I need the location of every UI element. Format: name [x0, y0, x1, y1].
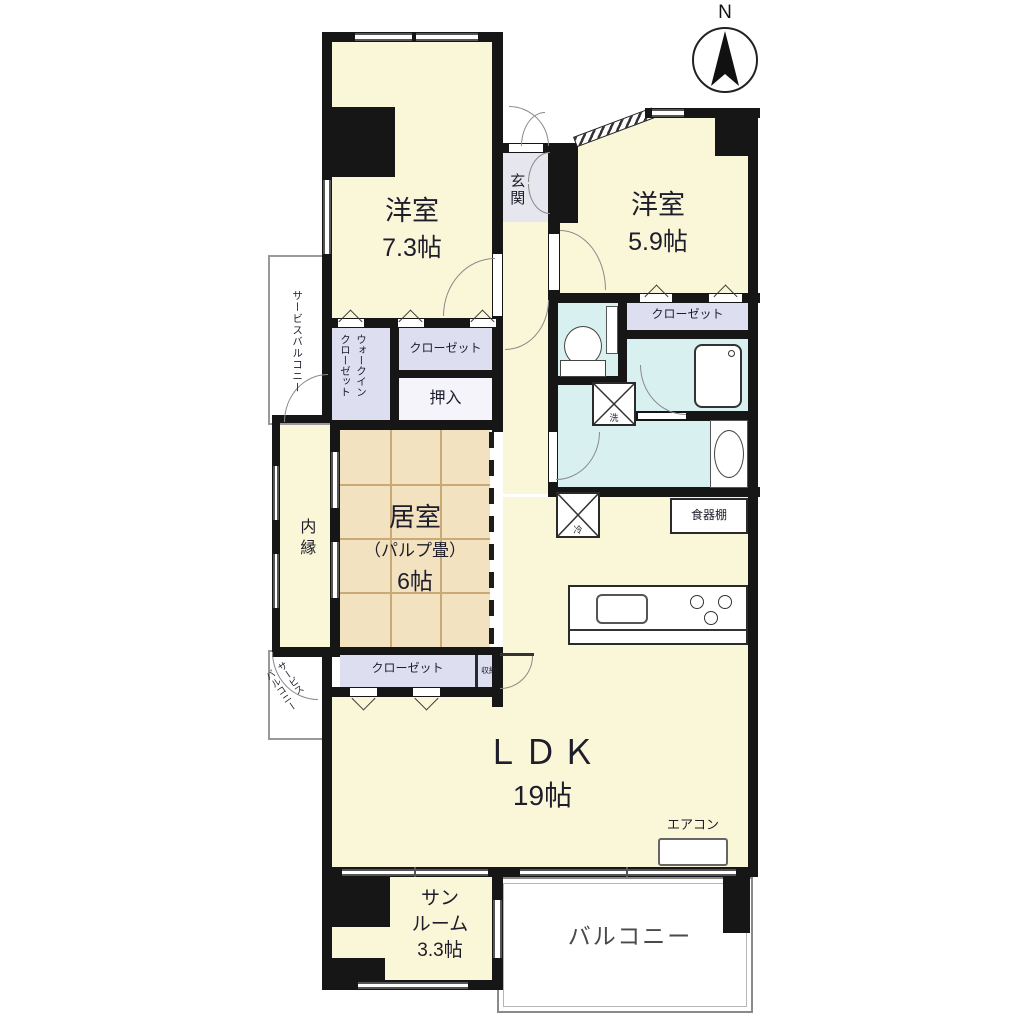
stove-burner-icon: [690, 595, 704, 609]
cupboard-box: 食器棚: [670, 498, 748, 534]
window: [416, 33, 478, 41]
sunroom-line2: ルーム: [385, 914, 495, 936]
wall: [272, 415, 280, 655]
sunroom-line1: サン: [385, 888, 495, 910]
sliding-door-tick: [414, 867, 416, 877]
walk-in-closet-label: ウォークイン クローゼット: [338, 334, 369, 418]
service-balcony-top-label: サービスバルコニー: [291, 272, 303, 412]
wall: [330, 647, 503, 655]
sliding-door-tick: [626, 867, 628, 877]
wall: [330, 420, 503, 430]
wall: [618, 303, 627, 383]
sliding-door-dashes: [489, 432, 494, 647]
compass-icon: [690, 24, 760, 94]
wall: [548, 143, 578, 223]
window: [358, 982, 468, 989]
pillar: [715, 108, 748, 156]
western-room-1-label: 洋室: [352, 196, 472, 227]
toilet-sink: [606, 306, 618, 354]
window: [323, 180, 331, 254]
tatami-room-note: （パルプ畳）: [340, 541, 490, 561]
ldk-size: 19帖: [460, 780, 625, 812]
window: [273, 466, 279, 520]
tatami-room-label: 居室: [355, 503, 475, 533]
kitchen-counter: [568, 585, 748, 645]
refrigerator-space-box: 冷: [556, 492, 600, 538]
wall: [395, 370, 503, 378]
closet-right-label: クローゼット: [627, 308, 748, 322]
window: [355, 33, 412, 41]
aircon-unit: [658, 838, 728, 866]
door-opening: [549, 234, 559, 290]
pillar: [723, 875, 750, 933]
compass-north-label: N: [714, 2, 736, 24]
walk-in-closet-line1: ウォークイン: [354, 334, 369, 418]
stove-burner-icon: [704, 611, 718, 625]
window: [331, 452, 339, 508]
tatami-grid-line: [340, 484, 490, 486]
stove-burner-icon: [718, 595, 732, 609]
oshiire-label: 押入: [399, 390, 492, 408]
western-room-2-size: 5.9帖: [598, 228, 718, 257]
washbasin-icon: [714, 430, 744, 478]
tatami-grid-line: [340, 538, 490, 540]
western-room-1-size: 7.3帖: [352, 234, 472, 263]
pillar: [330, 107, 395, 177]
closet-upper-label: クローゼット: [399, 342, 492, 356]
inner-veranda-label: 内縁: [296, 503, 314, 575]
ldk-label: ＬＤＫ: [460, 734, 625, 773]
window: [652, 109, 684, 117]
bathtub-drain: [728, 350, 735, 357]
tatami-room-floor: [340, 430, 490, 647]
walk-in-closet-line2: クローゼット: [338, 334, 353, 418]
laundry-label: 洗: [594, 413, 634, 423]
hallway-floor: [503, 222, 548, 494]
sunroom-size: 3.3帖: [385, 940, 495, 962]
toilet-tank: [560, 360, 606, 377]
floor-plan: 洗 冷 食器棚 N 洋室 7.3帖 洋室 5.9帖 玄関 クローゼット ウォーク…: [0, 0, 1024, 1024]
refrigerator-label: 冷: [558, 525, 598, 535]
closet-lower-label: クローゼット: [340, 662, 475, 676]
pillar: [322, 867, 390, 927]
bathtub-icon: [694, 344, 742, 408]
wall: [627, 330, 748, 339]
window: [273, 554, 279, 608]
entrance-label: 玄関: [508, 160, 525, 220]
window: [331, 542, 339, 598]
sliding-door: [520, 869, 736, 876]
wall: [322, 647, 332, 990]
cupboard-label: 食器棚: [672, 509, 746, 523]
laundry-space-box: 洗: [592, 382, 636, 426]
storage-small-label: 収納: [477, 666, 501, 675]
kitchen-sink-icon: [596, 594, 648, 624]
kitchen-counter-shelf-line: [570, 629, 746, 631]
western-room-2-label: 洋室: [598, 190, 718, 221]
tatami-room-size: 6帖: [355, 568, 475, 594]
aircon-label: エアコン: [652, 818, 734, 833]
balcony-label: バルコニー: [535, 923, 725, 949]
